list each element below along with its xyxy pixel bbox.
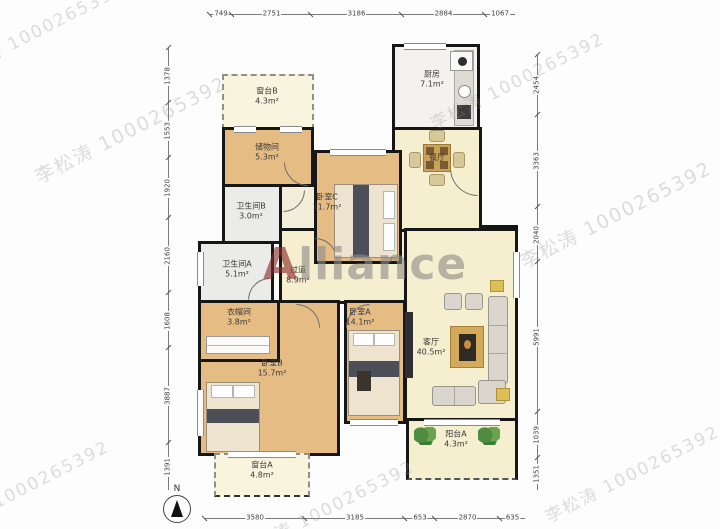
- room-name: 厨房: [420, 70, 444, 80]
- dimension-segment: 3887: [162, 348, 174, 443]
- window: [228, 451, 296, 458]
- dimension-label: 1351: [534, 464, 541, 484]
- dimension-segment: 3363: [531, 115, 543, 207]
- dimension-segment: 3185: [305, 512, 405, 524]
- window: [350, 419, 398, 426]
- dimension-segment: 1067: [485, 8, 515, 20]
- dimension-label: 1067: [490, 11, 510, 18]
- dimension-label: 653: [412, 515, 427, 522]
- watermark-text: 李松涛 1000265392: [0, 0, 128, 84]
- dimension-segment: 3186: [311, 8, 402, 20]
- appliance-icon: [450, 51, 473, 71]
- window: [330, 149, 386, 156]
- wall-step: [479, 225, 518, 231]
- room-label-kitchen: 厨房7.1m²: [420, 70, 444, 91]
- window: [197, 252, 204, 286]
- dimension-label: 2870: [458, 515, 478, 522]
- dimension-segment: 1378: [162, 48, 174, 103]
- room-area: 3.0m²: [236, 212, 266, 222]
- wardrobe-icon: [206, 336, 270, 354]
- room-label-bathroom-b: 卫生间B3.0m²: [236, 202, 266, 223]
- room-label-bedroom-b: 卧室B15.7m²: [258, 359, 287, 380]
- window: [234, 126, 256, 133]
- window: [197, 390, 204, 436]
- dimension-label: 3185: [345, 515, 365, 522]
- pillow: [233, 385, 255, 398]
- plant-icon: [414, 427, 436, 445]
- window: [404, 43, 446, 50]
- room-name: 窗台A: [250, 461, 274, 471]
- floorplan-canvas: 窗台B4.3m² 储物间5.3m² 卫生间B3.0m² 卧室C11.7m² 厨房…: [0, 0, 720, 529]
- dimension-chain-left: 1378155319202160160838871391: [162, 48, 174, 490]
- blanket: [207, 409, 259, 423]
- dimension-label: 3580: [245, 515, 265, 522]
- dimension-label: 1391: [165, 457, 172, 477]
- pillow: [383, 223, 395, 251]
- room-label-balcony-a: 阳台A4.3m²: [444, 430, 468, 451]
- window: [280, 126, 302, 133]
- dimension-label: 2454: [534, 75, 541, 95]
- chair-icon: [453, 152, 465, 168]
- side-table: [490, 280, 504, 292]
- dimension-segment: 749: [210, 8, 232, 20]
- dimension-segment: 2040: [531, 207, 543, 262]
- tv-icon: [405, 312, 413, 378]
- dimension-chain-right: 245433632040599110391351: [531, 55, 543, 490]
- room-area: 14.1m²: [346, 318, 375, 328]
- room-label-bathroom-a: 卫生间A5.1m²: [222, 260, 251, 281]
- dimension-segment: 2884: [402, 8, 485, 20]
- room-name: 储物间: [255, 143, 279, 153]
- bed-icon: [348, 330, 400, 416]
- dimension-segment: 3580: [205, 512, 305, 524]
- room-name: 衣帽间: [227, 308, 251, 318]
- dimension-segment: 1351: [531, 458, 543, 490]
- bed-icon: [206, 382, 260, 452]
- dimension-label: 2040: [534, 225, 541, 245]
- room-area: 4.3m²: [444, 440, 468, 450]
- dimension-segment: 2160: [162, 218, 174, 293]
- cushion-line: [454, 387, 455, 405]
- room-label-baywindow-a: 窗台A4.8m²: [250, 461, 274, 482]
- room-area: 7.1m²: [420, 80, 444, 90]
- dimension-label: 5991: [534, 327, 541, 347]
- dimension-label: 1553: [165, 121, 172, 141]
- watermark-text: 李松涛 1000265392: [515, 154, 716, 274]
- cushion-line: [489, 325, 507, 326]
- room-area: 40.5m²: [417, 348, 446, 358]
- dimension-label: 1039: [534, 425, 541, 445]
- room-label-storage: 储物间5.3m²: [255, 143, 279, 164]
- room-name: 卧室C: [313, 193, 342, 203]
- room-area: 5.1m²: [222, 270, 251, 280]
- dimension-segment: 635: [500, 512, 525, 524]
- dimension-label: 3887: [165, 386, 172, 406]
- north-triangle: [171, 500, 183, 517]
- room-label-dining: 餐厅: [429, 153, 445, 163]
- chair-icon: [429, 174, 445, 186]
- dimension-chain-bottom: 358031856532870635: [205, 512, 525, 524]
- table-art: [459, 334, 476, 361]
- plant-icon: [478, 427, 500, 445]
- room-name: 阳台A: [444, 430, 468, 440]
- north-circle: [163, 495, 191, 523]
- window: [513, 252, 520, 298]
- room-area: 11.7m²: [313, 203, 342, 213]
- dimension-label: 2751: [262, 11, 282, 18]
- watermark-text: 李松涛 1000265392: [540, 418, 720, 528]
- sofa-icon: [432, 386, 476, 406]
- watermark-text: 李松涛 1000265392: [0, 433, 113, 529]
- room-label-living: 客厅40.5m²: [417, 338, 446, 359]
- dimension-label: 1920: [165, 178, 172, 198]
- room-area: 4.3m²: [255, 97, 279, 107]
- pillow: [353, 333, 374, 346]
- dimension-segment: 2870: [435, 512, 500, 524]
- room-area: 4.8m²: [250, 471, 274, 481]
- quilt: [357, 371, 371, 391]
- cushion-line: [489, 353, 507, 354]
- burner: [458, 57, 467, 66]
- bed-icon: [334, 184, 398, 258]
- room-name: 客厅: [417, 338, 446, 348]
- room-label-hallway: 过道8.9m²: [286, 266, 310, 287]
- room-label-bedroom-c: 卧室C11.7m²: [313, 193, 342, 214]
- room-name: 过道: [286, 266, 310, 276]
- sink-icon: [458, 85, 471, 98]
- wardrobe-divider: [207, 345, 269, 346]
- dimension-segment: 1608: [162, 293, 174, 348]
- dimension-segment: 2751: [232, 8, 311, 20]
- armchair-icon: [465, 293, 483, 310]
- room-label-bedroom-a: 卧室A14.1m²: [346, 308, 375, 329]
- dimension-segment: 653: [405, 512, 435, 524]
- dimension-label: 749: [213, 11, 228, 18]
- pillow: [211, 385, 233, 398]
- dimension-segment: 1553: [162, 103, 174, 158]
- coffee-table: [450, 326, 484, 368]
- dimension-label: 2884: [434, 11, 454, 18]
- pillow: [374, 333, 395, 346]
- room-name: 卧室B: [258, 359, 287, 369]
- window: [424, 419, 500, 426]
- north-label: N: [160, 484, 194, 494]
- dimension-label: 1608: [165, 311, 172, 331]
- room-area: 3.8m²: [227, 318, 251, 328]
- art-dot: [464, 340, 471, 349]
- room-name: 窗台B: [255, 87, 279, 97]
- room-area: 5.3m²: [255, 153, 279, 163]
- room-label-closet: 衣帽间3.8m²: [227, 308, 251, 329]
- dimension-segment: 1391: [162, 443, 174, 490]
- blanket: [353, 185, 369, 257]
- room-name: 卧室A: [346, 308, 375, 318]
- side-table: [496, 388, 510, 401]
- north-arrow: N: [160, 484, 194, 523]
- room-label-baywindow-b: 窗台B4.3m²: [255, 87, 279, 108]
- dimension-label: 635: [505, 515, 520, 522]
- dimension-segment: 1039: [531, 412, 543, 458]
- dimension-label: 3363: [534, 151, 541, 171]
- dimension-segment: 5991: [531, 262, 543, 412]
- room-name: 卫生间A: [222, 260, 251, 270]
- stove-icon: [457, 105, 471, 119]
- room-name: 卫生间B: [236, 202, 266, 212]
- dimension-label: 1378: [165, 66, 172, 86]
- dimension-label: 2160: [165, 246, 172, 266]
- room-area: 15.7m²: [258, 369, 287, 379]
- chair-icon: [409, 152, 421, 168]
- dimension-segment: 2454: [531, 55, 543, 115]
- armchair-icon: [444, 293, 462, 310]
- dimension-segment: 1920: [162, 158, 174, 218]
- watermark-text: 李松涛 1000265392: [30, 69, 231, 189]
- dimension-chain-top: 7492751318628841067: [210, 8, 515, 20]
- dimension-label: 3186: [347, 11, 367, 18]
- chair-icon: [429, 130, 445, 142]
- room-name: 餐厅: [429, 153, 445, 163]
- room-area: 8.9m²: [286, 276, 310, 286]
- pillow: [383, 191, 395, 219]
- sofa-icon: [488, 296, 508, 384]
